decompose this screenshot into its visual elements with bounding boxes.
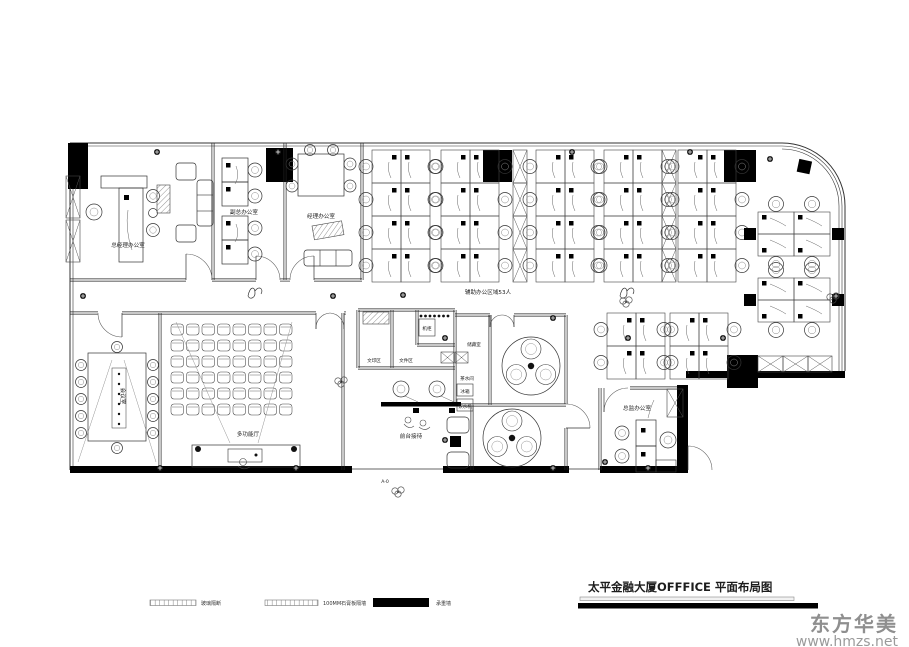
legend-swatch-solid	[373, 598, 429, 607]
label-storage: 储藏室	[467, 341, 481, 348]
legend-swatch-gypsum	[265, 600, 318, 606]
legend-label-solid: 承重墙	[436, 600, 451, 607]
label-file-area: 文件区	[399, 357, 413, 364]
watermark-url: www.hmzs.net	[796, 634, 899, 647]
label-gm-office: 总经理办公室	[111, 241, 145, 249]
label-meeting-room: 会议室	[119, 388, 127, 405]
plan-geometry	[66, 143, 845, 497]
workstation-cluster	[523, 150, 607, 282]
label-cabinet: 机柜	[422, 325, 432, 332]
legend-label-gypsum: 100MM石膏板隔墙	[323, 600, 366, 607]
watermark: 东方华美 www.hmzs.net	[796, 612, 899, 647]
round-table-rooms	[447, 337, 560, 468]
label-manager-office: 经理办公室	[307, 212, 335, 220]
title-block: 太平金融大厦OFFFICE 平面布局图	[578, 580, 818, 609]
label-multi-hall: 多功能厅	[237, 430, 260, 438]
multi-hall-seating	[171, 322, 300, 469]
watermark-brand: 东方华美	[810, 612, 898, 636]
workstation-cluster	[744, 197, 844, 272]
label-print-area: 文印区	[367, 357, 381, 364]
floor-plan-canvas: 总经理办公室 副总办公室 经理办公室 会议室 多功能厅 总监办公室 储藏室 茶水…	[0, 0, 909, 647]
walls	[70, 143, 845, 470]
label-deputy-office: 副总办公室	[230, 208, 258, 216]
label-fridge: 冰箱	[460, 388, 470, 395]
label-water: 饮水机	[458, 403, 472, 410]
floor-plan-sheet: 总经理办公室 副总办公室 经理办公室 会议室 多功能厅 总监办公室 储藏室 茶水…	[0, 0, 909, 647]
legend: 玻璃隔断 100MM石膏板隔墙 承重墙	[150, 598, 451, 607]
title-rule-thin	[580, 597, 794, 601]
open-office-clusters	[359, 150, 844, 379]
legend-swatch-glass	[150, 600, 196, 606]
workstation-cluster	[359, 150, 443, 282]
label-area-note: 辅助办公区域53人	[465, 288, 512, 296]
service-block	[363, 312, 449, 336]
label-entry: A-0	[381, 479, 389, 485]
room-labels: 总经理办公室 副总办公室 经理办公室 会议室 多功能厅 总监办公室 储藏室 茶水…	[111, 208, 651, 485]
legend-label-glass: 玻璃隔断	[201, 600, 221, 607]
structural-columns	[68, 143, 845, 473]
drawing-title: 太平金融大厦OFFFICE 平面布局图	[587, 580, 772, 594]
label-reception: 前台接待	[400, 432, 423, 440]
conference-room	[76, 342, 159, 463]
label-director-office: 总监办公室	[623, 404, 651, 412]
reception-area	[381, 381, 461, 430]
title-rule-thick	[578, 603, 818, 609]
label-pantry: 茶水间	[460, 375, 474, 382]
